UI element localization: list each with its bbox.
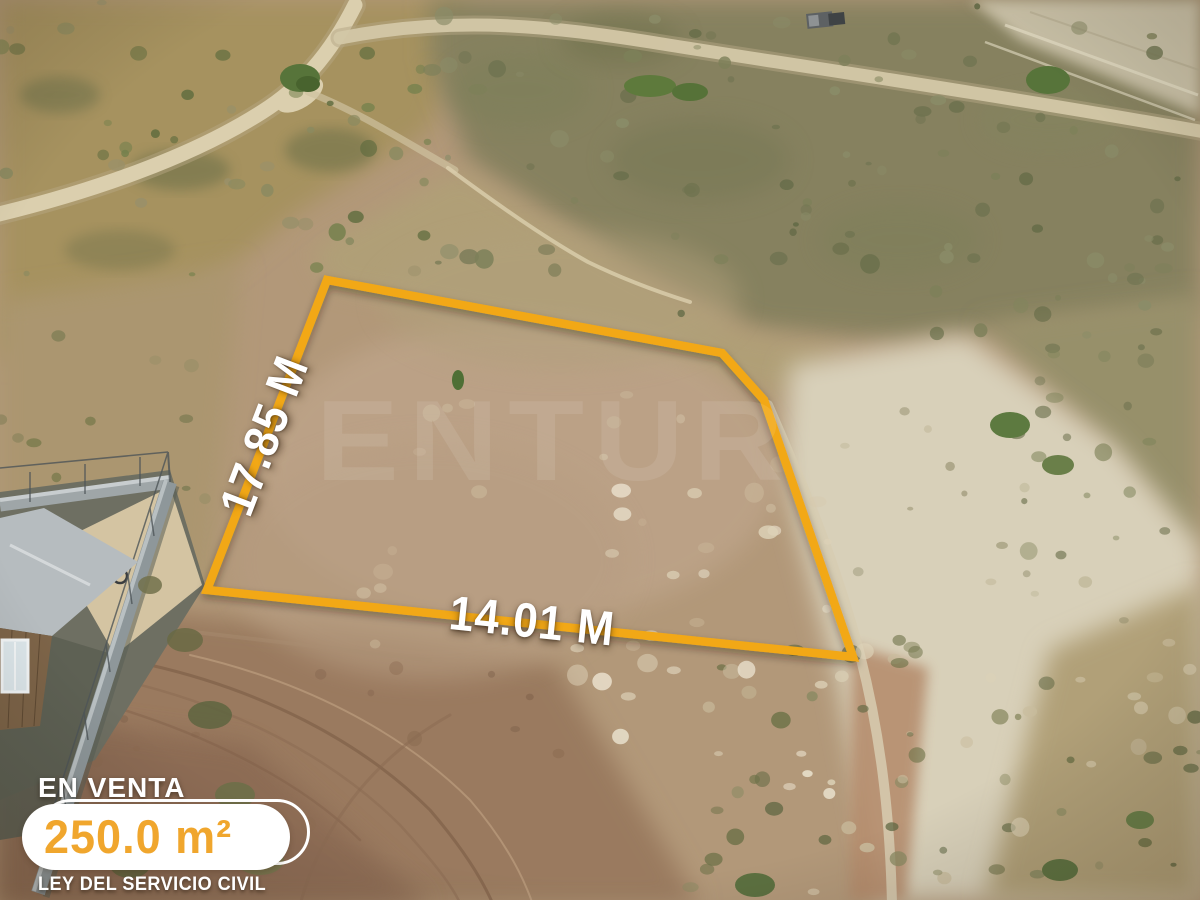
area-badge: 250.0 m² (22, 804, 290, 870)
law-label: LEY DEL SERVICIO CIVIL (38, 874, 266, 896)
aerial-lot-photo: ENTUR 17.85 M 14.01 M EN VENTA 250.0 m² … (0, 0, 1200, 900)
area-value: 250.0 m² (22, 810, 232, 865)
watermark: ENTUR (316, 376, 793, 507)
